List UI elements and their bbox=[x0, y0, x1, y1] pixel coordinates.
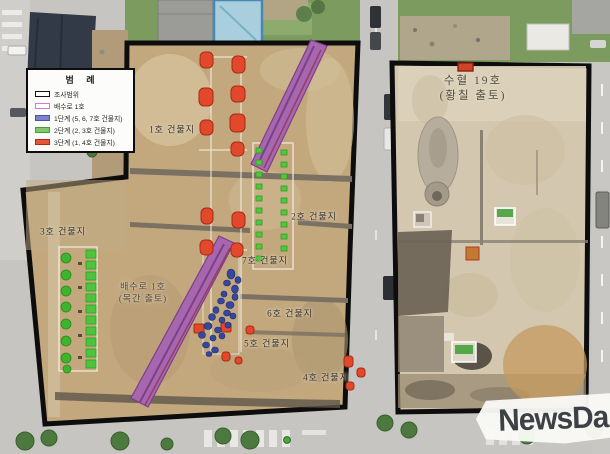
label-drainage-1: 배수로 1호 (목간 출토) bbox=[119, 281, 167, 304]
trench-vertical bbox=[480, 130, 483, 245]
orange-feature bbox=[466, 247, 479, 260]
legend-box: 범 례 조사범위 배수로 1호 1단계 (5, 6, 7호 건물지) 2단계 (… bbox=[26, 68, 135, 153]
legend-item-stage1: 1단계 (5, 6, 7호 건물지) bbox=[28, 112, 133, 124]
drainage-swatch-icon bbox=[35, 103, 50, 109]
label-pit-19: 수혈 19호 (황칠 출토) bbox=[440, 74, 507, 104]
legend-item-drainage: 배수로 1호 bbox=[28, 100, 133, 112]
survey-area-swatch-icon bbox=[35, 91, 50, 97]
white-roof-building bbox=[527, 24, 569, 50]
legend-item-stage3: 3단계 (1, 4호 건물지) bbox=[28, 136, 133, 148]
legend-item-stage2: 2단계 (2, 3호 건물지) bbox=[28, 124, 133, 136]
label-building-1: 1호 건물지 bbox=[149, 123, 195, 136]
newsda-watermark-text: NewsDa bbox=[495, 399, 608, 439]
stage3-swatch-icon bbox=[35, 139, 50, 145]
label-building-6: 6호 건물지 bbox=[267, 307, 313, 320]
gray-building bbox=[158, 0, 213, 42]
stage2-swatch-icon bbox=[35, 127, 50, 133]
legend-item-survey-area: 조사범위 bbox=[28, 88, 133, 100]
label-building-7: 7호 건물지 bbox=[242, 254, 288, 267]
right-excavation-site bbox=[392, 63, 589, 412]
label-building-4: 4호 건물지 bbox=[303, 371, 349, 384]
label-building-3: 3호 건물지 bbox=[40, 225, 86, 238]
dark-soil-area bbox=[398, 230, 452, 316]
red-marker bbox=[458, 63, 473, 71]
stage1-swatch-icon bbox=[35, 115, 50, 121]
label-building-2: 2호 건물지 bbox=[291, 210, 337, 223]
legend-title: 범 례 bbox=[28, 72, 133, 88]
news-photo-aerial-excavation: 범 례 조사범위 배수로 1호 1단계 (5, 6, 7호 건물지) 2단계 (… bbox=[0, 0, 610, 454]
traffic-light bbox=[284, 437, 291, 444]
label-building-5: 5호 건물지 bbox=[244, 337, 290, 350]
